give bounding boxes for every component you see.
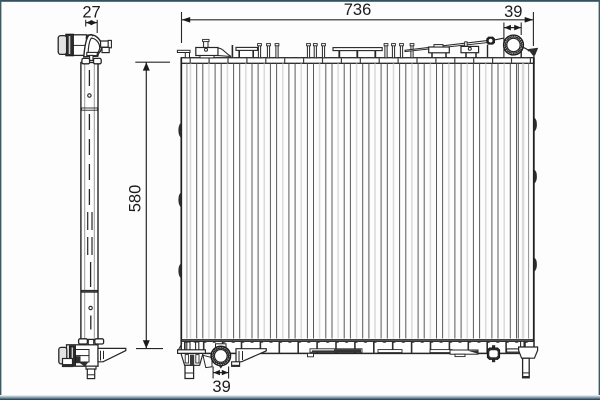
svg-text:39: 39: [212, 378, 230, 396]
svg-text:580: 580: [127, 185, 145, 213]
svg-text:736: 736: [344, 1, 372, 19]
svg-text:39: 39: [504, 3, 522, 21]
svg-text:27: 27: [82, 4, 100, 22]
